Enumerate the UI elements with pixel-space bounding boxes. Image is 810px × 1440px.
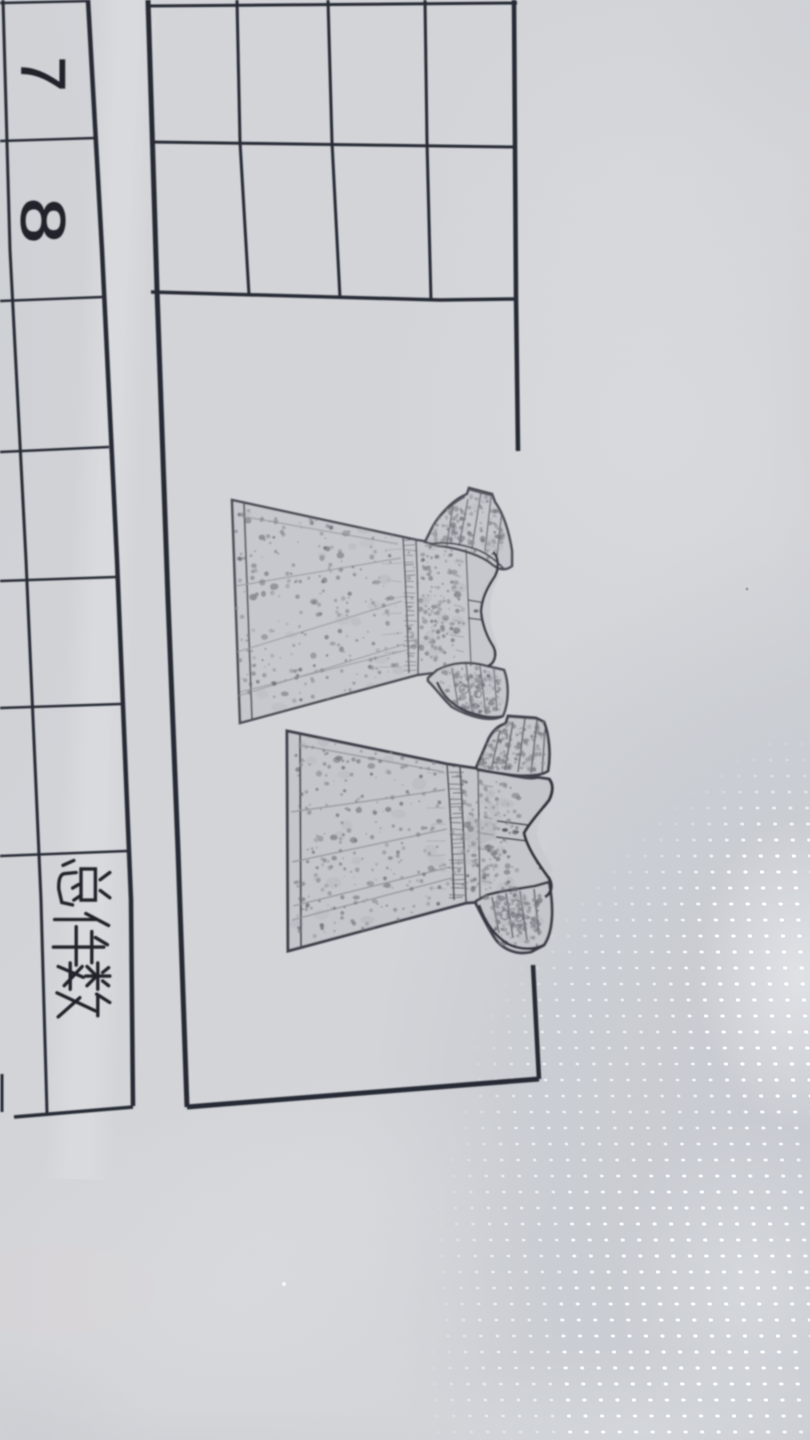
svg-text:7: 7	[8, 57, 77, 91]
svg-text:8: 8	[8, 198, 77, 244]
